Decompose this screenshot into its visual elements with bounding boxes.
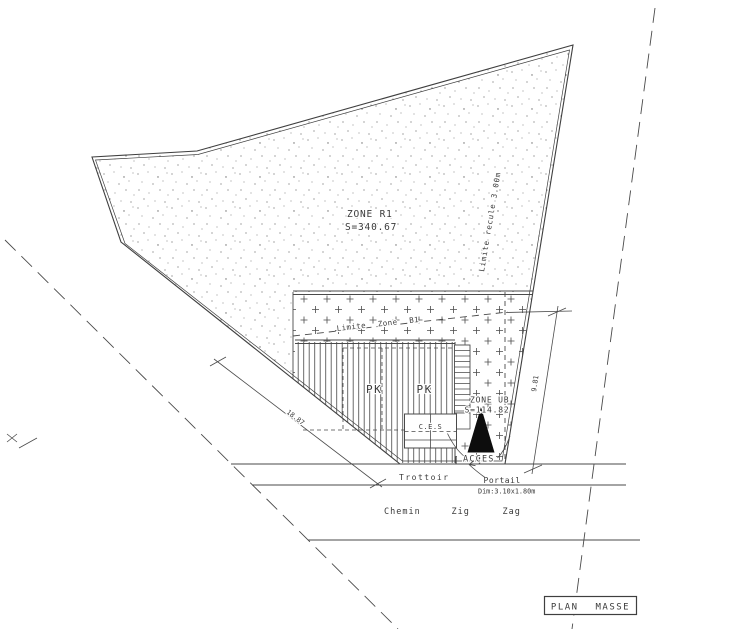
- street-name-zig: Zig: [452, 507, 470, 517]
- street-lines: [231, 457, 640, 541]
- zone-r1-area: S=340.67: [345, 222, 397, 233]
- title-block: PLAN MASSE: [545, 597, 637, 615]
- street-name-chemin: Chemin: [384, 507, 421, 517]
- portail-label: Portail: [484, 476, 521, 485]
- drawing-title: PLAN MASSE: [551, 603, 630, 613]
- stairs-outline: [455, 345, 471, 413]
- site-plan-drawing: C.E.S ACCES Limite Zone B1 18.87 9.81 ZO: [0, 0, 750, 629]
- dimension-side-depth: 9.81: [524, 306, 566, 474]
- street-name-zag: Zag: [503, 507, 521, 517]
- ces-box: C.E.S: [405, 414, 457, 448]
- zone-ub-name: ZONE UB: [470, 396, 509, 405]
- dim-depth-value: 9.81: [530, 375, 540, 392]
- zone-ub-area: S=114.82: [465, 406, 510, 415]
- survey-mark: [7, 434, 37, 448]
- ces-label: C.E.S: [419, 423, 443, 431]
- portail-dimension: Dim:3.10x1.80m: [478, 488, 535, 496]
- road-axis-right: [572, 8, 655, 629]
- portail-callout: Portail Dim:3.10x1.80m: [469, 461, 535, 496]
- parking-label-right: PK: [417, 383, 433, 396]
- sidewalk-label: Trottoir: [399, 473, 450, 482]
- access-label: ACCES: [463, 455, 495, 465]
- parking-label-left: PK: [366, 383, 382, 396]
- zone-r1-name: ZONE R1: [347, 209, 393, 220]
- site-plan-canvas: C.E.S ACCES Limite Zone B1 18.87 9.81 ZO: [0, 0, 750, 629]
- dim-frontage-value: 18.87: [285, 408, 306, 427]
